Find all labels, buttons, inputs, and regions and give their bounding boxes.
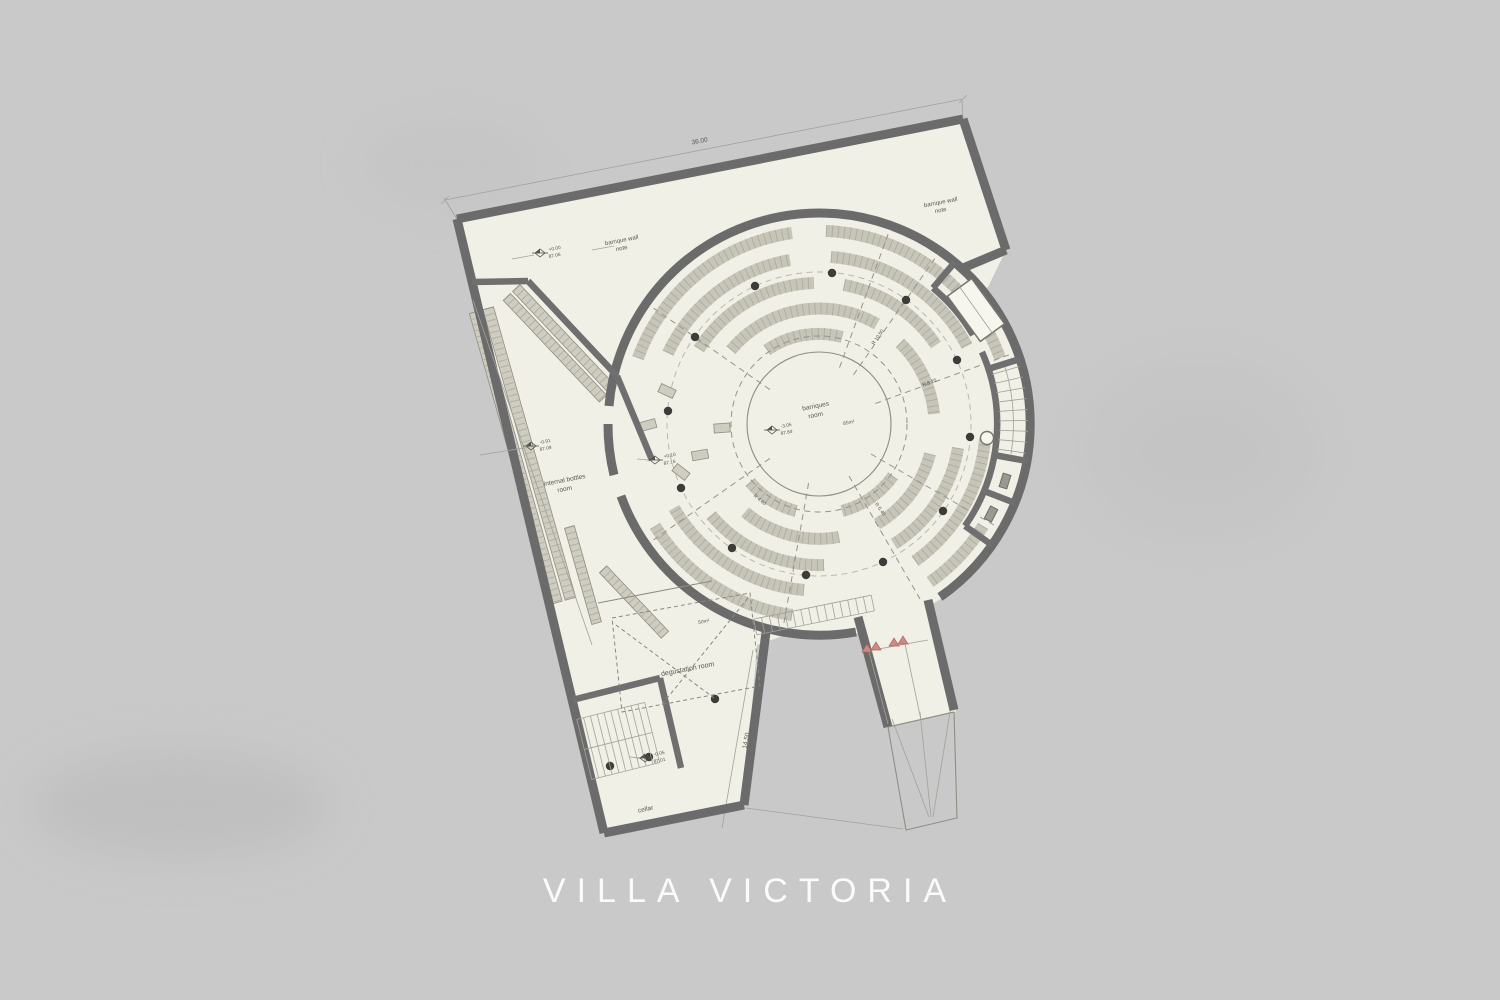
dimension-label-top: 36.00 <box>691 136 709 146</box>
plan-title: VILLA VICTORIA <box>0 872 1500 911</box>
floor-plan-drawing: 36.00 14.50 <box>0 0 1500 1000</box>
screenshot-canvas: 36.00 14.50 <box>0 0 1500 1000</box>
